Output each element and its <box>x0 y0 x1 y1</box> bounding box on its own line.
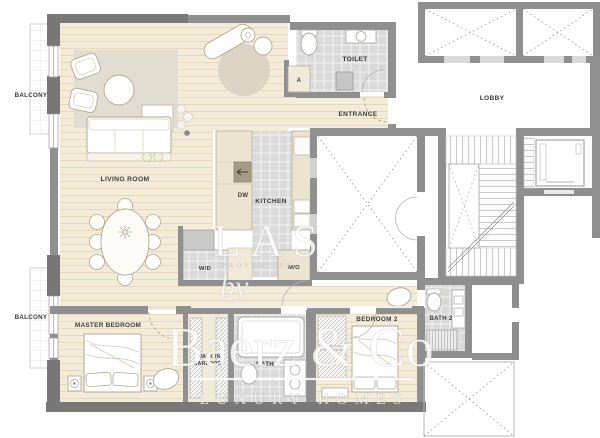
wd-label: W/D <box>199 266 211 272</box>
stairwell <box>446 136 516 276</box>
living-room-label: LIVING ROOM <box>101 176 150 183</box>
watermark-by: by <box>220 270 249 303</box>
toilet-shelf <box>336 72 353 90</box>
dining-table <box>101 209 149 275</box>
floor-plan-page: BALCONY LIVING ROOM DW KITCHEN TOILET A … <box>0 0 600 438</box>
watermark-top-brand: LAS <box>213 215 327 266</box>
balcony-top-label: BALCONY <box>15 92 48 99</box>
void-room-bottom-right <box>424 362 514 436</box>
void-room-top-2 <box>523 9 593 56</box>
balcony-bottom-label: BALCONY <box>15 314 48 321</box>
master-bedroom-label: MASTER BEDROOM <box>75 322 141 329</box>
watermark-tagline: LUXURY HOMES <box>199 391 408 408</box>
floor-plan: BALCONY LIVING ROOM DW KITCHEN TOILET A … <box>0 0 600 438</box>
stairs <box>446 136 516 164</box>
kitchen-sink <box>294 137 310 155</box>
watermark-top-sub: PROPERTIES <box>222 262 294 269</box>
closet-a-label: A <box>297 78 302 84</box>
bed <box>84 334 141 392</box>
sink-counter <box>346 30 376 43</box>
hallway-floor <box>183 286 417 308</box>
watermark-brand: Baerz & Co <box>166 317 433 379</box>
dw-label: DW <box>238 193 249 199</box>
entrance-label: ENTRANCE <box>338 111 377 118</box>
toilet-fixture <box>427 293 441 311</box>
centerpiece <box>118 225 132 239</box>
wd-counter <box>183 230 214 250</box>
elevator-car <box>536 140 584 186</box>
elevator <box>524 138 584 188</box>
void-door-arc <box>396 197 418 240</box>
lobby-label: LOBBY <box>480 95 505 102</box>
pillow <box>113 372 139 386</box>
stair-void <box>449 164 479 248</box>
sofa <box>87 117 171 162</box>
toilet-fixture <box>301 33 317 55</box>
toilet-label: TOILET <box>342 56 367 63</box>
void-room-top-1 <box>425 9 516 56</box>
kitchen-label: KITCHEN <box>255 198 286 205</box>
pillow <box>86 372 112 387</box>
void-room-center <box>318 136 417 272</box>
nightstand <box>68 376 81 391</box>
coffee-table <box>104 75 134 105</box>
dining-chair <box>90 215 105 230</box>
